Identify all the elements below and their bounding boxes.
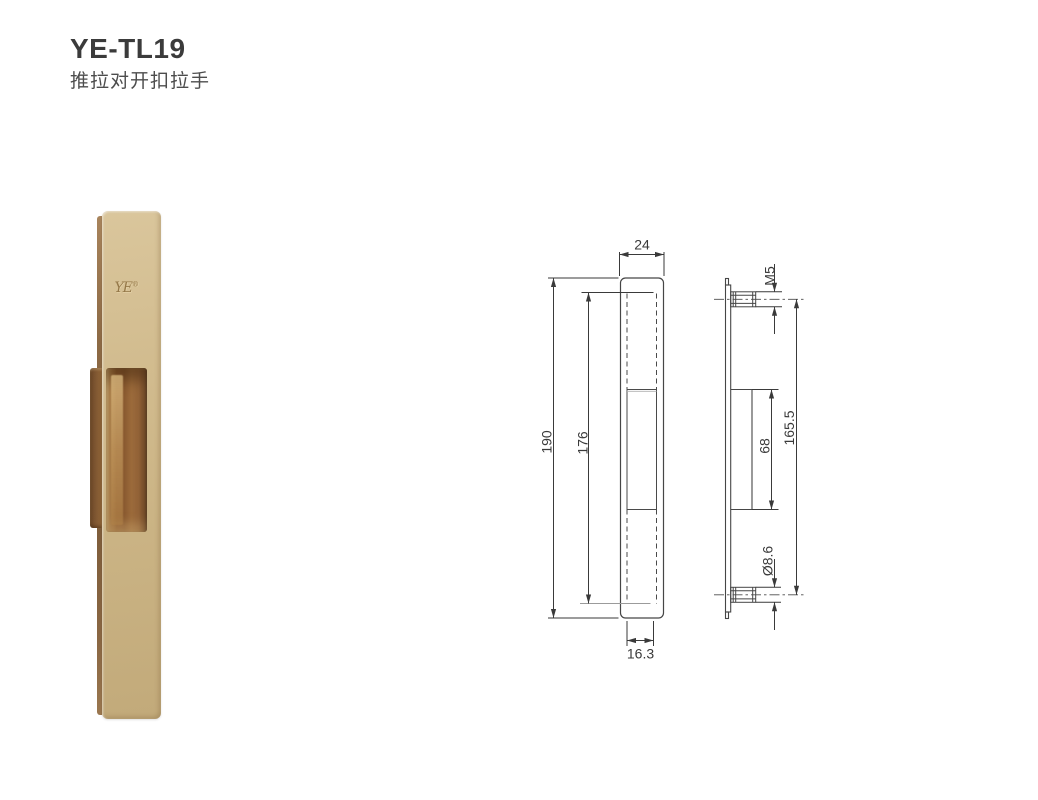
dim-pocket-68: 68 <box>757 438 773 454</box>
product-code: YE-TL19 <box>70 34 210 63</box>
dim-height-190: 190 <box>539 430 555 454</box>
front-view-dimensions <box>548 252 664 646</box>
technical-drawing: 24 190 176 16.3 <box>520 225 840 675</box>
registered-mark: ® <box>132 280 139 288</box>
brand-logo: YE® <box>115 280 139 296</box>
dim-width-24: 24 <box>634 237 650 253</box>
dim-boss-diameter-8-6: Ø8.6 <box>760 546 776 577</box>
handle-face: YE® <box>102 211 161 719</box>
front-view-recess <box>627 294 657 604</box>
product-name-cn: 推拉对开扣拉手 <box>70 66 210 93</box>
dim-recess-height-176: 176 <box>575 431 591 455</box>
product-header: YE-TL19 推拉对开扣拉手 <box>70 34 210 93</box>
catalog-page: YE-TL19 推拉对开扣拉手 YE® <box>0 0 1038 800</box>
dim-centers-165-5: 165.5 <box>781 410 797 445</box>
pocket-housing <box>90 368 102 528</box>
pocket-recess <box>106 368 147 532</box>
dim-recess-width-16-3: 16.3 <box>627 646 654 662</box>
product-photo: YE® <box>88 205 172 727</box>
brand-logo-text: YE <box>115 280 132 296</box>
dim-thread-m5: M5 <box>762 266 778 286</box>
side-view-plate <box>726 279 753 619</box>
pocket-inner-wall <box>111 375 123 525</box>
